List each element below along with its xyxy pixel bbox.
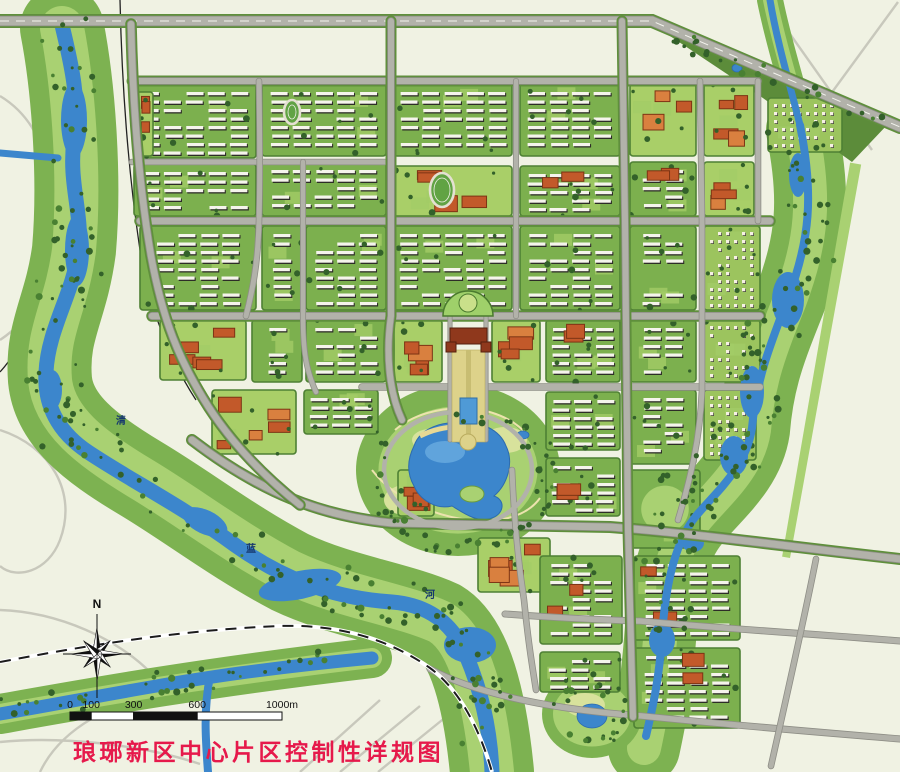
slab-building	[551, 143, 568, 146]
tree	[689, 175, 694, 180]
tree	[542, 507, 546, 511]
tree	[376, 512, 380, 516]
slab-building	[553, 417, 570, 420]
slab-building	[529, 234, 546, 237]
scale-bar-tick-label: 1000m	[266, 699, 298, 711]
civic-wing	[481, 342, 491, 352]
tree	[681, 500, 684, 503]
tree	[479, 697, 486, 704]
tree	[140, 493, 145, 498]
slab-building	[644, 328, 661, 331]
slab-building	[423, 234, 440, 237]
slab-building	[489, 243, 506, 246]
slab-building	[445, 243, 462, 246]
slab-building	[209, 101, 226, 104]
tree	[818, 239, 823, 244]
tree	[722, 673, 726, 677]
city-block	[630, 84, 696, 156]
tree	[688, 606, 694, 612]
tree	[653, 558, 660, 565]
tree	[704, 49, 710, 55]
tree	[658, 522, 665, 529]
tree	[644, 136, 650, 142]
tree	[62, 86, 66, 90]
villa-house	[782, 144, 785, 147]
tree	[500, 529, 503, 532]
villa-house	[718, 420, 721, 423]
tree	[262, 563, 266, 567]
slab-building	[644, 294, 661, 297]
slab-building	[467, 277, 484, 280]
tree	[118, 472, 124, 478]
slab-building	[488, 285, 505, 288]
slab-building	[528, 183, 545, 186]
slab-building	[209, 206, 226, 209]
tree	[62, 417, 68, 423]
tree	[446, 641, 452, 647]
tree	[825, 220, 830, 225]
slab-building	[550, 101, 567, 104]
tree	[572, 194, 579, 201]
villa-house	[782, 112, 785, 115]
tree	[739, 375, 745, 381]
villa-house	[734, 280, 737, 283]
villa-house	[742, 248, 745, 251]
tree	[78, 287, 85, 294]
slab-building	[597, 400, 614, 403]
tree	[741, 444, 747, 450]
tree	[653, 513, 656, 516]
slab-building	[338, 354, 355, 357]
courtyard	[719, 169, 737, 181]
slab-building	[528, 243, 545, 246]
slab-building	[596, 500, 613, 503]
villa-house	[726, 342, 729, 345]
tree	[86, 248, 93, 255]
tree	[728, 422, 734, 428]
slab-building	[338, 170, 355, 173]
villa-house	[718, 288, 721, 291]
slab-building	[208, 143, 225, 146]
slab-building	[467, 285, 484, 288]
orange-building	[641, 567, 657, 576]
villa-house	[806, 112, 809, 115]
tree	[154, 670, 159, 675]
slab-building	[467, 92, 484, 95]
slab-building	[332, 424, 349, 427]
tree	[290, 290, 295, 295]
tree	[346, 571, 349, 574]
slab-building	[466, 260, 483, 263]
tree	[186, 523, 190, 527]
slab-building	[401, 126, 418, 129]
slab-building	[156, 260, 173, 263]
river	[0, 153, 58, 158]
slab-building	[645, 598, 662, 601]
slab-building	[337, 109, 354, 112]
tree	[148, 182, 151, 185]
orange-building	[196, 360, 222, 370]
slab-building	[231, 206, 248, 209]
scale-bar-tick-label: 300	[125, 699, 143, 711]
slab-building	[550, 260, 567, 263]
villa-house	[726, 396, 729, 399]
villa-house	[734, 256, 737, 259]
villa-house	[734, 240, 737, 243]
slab-building	[231, 135, 248, 138]
slab-building	[528, 143, 545, 146]
slab-building	[689, 564, 706, 567]
slab-building	[354, 424, 371, 427]
tree	[35, 280, 38, 283]
slab-building	[466, 268, 483, 271]
tree	[796, 333, 801, 338]
tree	[315, 649, 321, 655]
tree	[573, 247, 579, 253]
tree	[506, 365, 512, 371]
slab-building	[550, 285, 567, 288]
slab-building	[596, 328, 613, 331]
slab-building	[573, 607, 590, 610]
tree	[533, 442, 536, 445]
slab-building	[208, 92, 225, 95]
city-block	[546, 458, 620, 516]
axis-median	[466, 350, 471, 442]
slab-building	[360, 196, 377, 199]
slab-building	[360, 294, 377, 297]
tree	[706, 271, 710, 275]
tree	[57, 46, 62, 51]
city-block	[394, 84, 512, 156]
slab-building	[338, 277, 355, 280]
tree	[79, 192, 83, 196]
slab-building	[643, 234, 660, 237]
slab-building	[400, 251, 417, 254]
slab-building	[360, 260, 377, 263]
tree	[586, 347, 590, 351]
tree	[51, 74, 55, 78]
slab-building	[596, 509, 613, 512]
tree	[788, 325, 795, 332]
courtyard	[720, 115, 738, 127]
tree	[518, 525, 524, 531]
tree	[173, 688, 180, 695]
tree	[796, 168, 799, 171]
tree	[741, 332, 746, 337]
slab-building	[666, 260, 683, 263]
slab-building	[359, 268, 376, 271]
slab-building	[201, 234, 218, 237]
tree	[51, 159, 56, 164]
tree	[492, 172, 495, 175]
villa-house	[710, 296, 713, 299]
tree	[588, 482, 595, 489]
slab-building	[667, 707, 684, 710]
slab-building	[572, 183, 589, 186]
slab-building	[178, 277, 195, 280]
tree	[576, 189, 581, 194]
orange-building	[543, 178, 559, 188]
slab-building	[400, 101, 417, 104]
tree	[240, 554, 243, 557]
slab-building	[316, 285, 333, 288]
tree	[555, 360, 560, 365]
slab-building	[595, 183, 612, 186]
slab-building	[164, 109, 181, 112]
villa-house	[782, 104, 785, 107]
tree	[287, 427, 291, 431]
slab-building	[551, 126, 568, 129]
tree	[676, 498, 680, 502]
slab-building	[529, 268, 546, 271]
tree	[672, 40, 676, 44]
tree	[682, 616, 687, 621]
tree	[503, 359, 507, 363]
tree	[631, 90, 634, 93]
tree	[586, 342, 591, 347]
tree	[612, 739, 616, 743]
slab-building	[316, 362, 333, 365]
villa-house	[718, 342, 721, 345]
villa-house	[726, 428, 729, 431]
tree	[804, 290, 810, 296]
tree	[424, 507, 429, 512]
slab-building	[164, 126, 181, 129]
tree	[392, 520, 396, 524]
tree	[151, 203, 155, 207]
slab-building	[271, 92, 288, 95]
tree	[591, 570, 596, 575]
slab-building	[529, 191, 546, 194]
tree	[458, 601, 463, 606]
tree	[71, 239, 76, 244]
tree	[739, 70, 746, 77]
tree	[520, 444, 525, 449]
tree	[215, 528, 220, 533]
orange-building	[562, 172, 584, 181]
slab-building	[359, 243, 376, 246]
tree	[352, 150, 358, 156]
river-widening	[61, 82, 87, 158]
tree	[11, 710, 18, 717]
tree	[284, 355, 288, 359]
villa-house	[774, 128, 777, 131]
tree	[432, 624, 439, 631]
tree	[40, 39, 44, 43]
orange-building	[249, 431, 262, 440]
villa-house	[726, 280, 729, 283]
tree	[483, 136, 488, 141]
tree	[116, 433, 119, 436]
city-block	[630, 390, 696, 464]
tree	[277, 667, 281, 671]
slab-building	[595, 302, 612, 305]
slab-building	[187, 152, 204, 155]
tree	[353, 575, 360, 582]
tree	[786, 150, 791, 155]
tree	[550, 461, 555, 466]
orange-building	[509, 337, 532, 350]
tree	[605, 689, 610, 694]
tree	[530, 114, 535, 119]
slab-building	[528, 118, 545, 121]
villa-house	[742, 240, 745, 243]
slab-building	[200, 294, 217, 297]
slab-building	[711, 590, 728, 593]
tree	[761, 364, 767, 370]
slab-building	[712, 607, 729, 610]
slab-building	[529, 174, 546, 177]
villa-house	[742, 256, 745, 259]
tree	[76, 445, 81, 450]
villa-house	[734, 374, 737, 377]
slab-building	[360, 126, 377, 129]
tree	[456, 703, 462, 709]
slab-building	[231, 92, 248, 95]
slab-building	[594, 118, 611, 121]
slab-building	[445, 118, 462, 121]
tree	[396, 519, 400, 523]
slab-building	[666, 294, 683, 297]
tree	[752, 253, 755, 256]
slab-building	[596, 371, 613, 374]
river-widening	[649, 623, 675, 657]
tree	[89, 234, 95, 240]
tree	[510, 556, 514, 560]
tree	[525, 444, 531, 450]
tree	[199, 666, 205, 672]
slab-building	[467, 101, 484, 104]
tree	[397, 106, 402, 111]
orange-building	[501, 349, 519, 359]
tree	[271, 331, 276, 336]
slab-building	[337, 101, 354, 104]
tree	[276, 373, 282, 379]
slab-building	[423, 243, 440, 246]
slab-building	[222, 243, 239, 246]
slab-building	[401, 302, 418, 305]
villa-house	[742, 436, 745, 439]
tree	[89, 74, 95, 80]
tree	[787, 204, 790, 207]
tree	[82, 423, 85, 426]
slab-building	[230, 109, 247, 112]
slab-building	[643, 345, 660, 348]
slab-building	[528, 101, 545, 104]
tree	[498, 678, 503, 683]
tree	[813, 121, 820, 128]
tree	[806, 276, 812, 282]
slab-building	[338, 294, 355, 297]
slab-building	[571, 669, 588, 672]
slab-building	[711, 598, 728, 601]
villa-house	[718, 232, 721, 235]
tree	[408, 195, 413, 200]
tree	[508, 419, 513, 424]
city-block	[262, 161, 386, 216]
orange-building	[719, 100, 733, 108]
slab-building	[666, 187, 683, 190]
tree	[788, 169, 791, 172]
tree	[330, 608, 335, 613]
tree	[729, 228, 733, 232]
tree	[720, 454, 723, 457]
slab-building	[359, 118, 376, 121]
plaza-center	[459, 294, 477, 312]
tree	[647, 304, 654, 311]
villa-house	[726, 374, 729, 377]
tree	[434, 613, 440, 619]
slab-building	[553, 443, 570, 446]
slab-building	[572, 92, 589, 95]
tree	[692, 531, 696, 535]
tree	[250, 408, 254, 412]
slab-building	[594, 135, 611, 138]
tree	[593, 394, 597, 398]
tree	[79, 382, 84, 387]
slab-building	[574, 434, 591, 437]
orange-building	[268, 409, 290, 420]
slab-building	[552, 345, 569, 348]
tree	[568, 266, 575, 273]
tree	[741, 163, 745, 167]
slab-building	[315, 196, 332, 199]
villa-house	[726, 240, 729, 243]
tree	[491, 676, 495, 680]
tree	[690, 546, 697, 553]
villa-house	[710, 374, 713, 377]
scale-bar-segment	[91, 712, 133, 720]
tree	[465, 629, 468, 632]
tree	[51, 297, 54, 300]
slab-building	[572, 260, 589, 263]
slab-building	[597, 434, 614, 437]
tree	[380, 199, 385, 204]
slab-building	[164, 172, 181, 175]
slab-building	[665, 424, 682, 427]
tree	[531, 323, 536, 328]
orange-building	[141, 122, 149, 132]
slab-building	[316, 92, 333, 95]
slab-building	[178, 234, 195, 237]
slab-building	[489, 277, 506, 280]
villa-house	[710, 358, 713, 361]
tree	[79, 409, 82, 412]
tree	[368, 113, 373, 118]
tree	[743, 135, 748, 140]
tree	[385, 617, 392, 624]
tree	[84, 693, 87, 696]
tree	[461, 419, 466, 424]
tree	[118, 440, 123, 445]
slab-building	[528, 277, 545, 280]
slab-building	[360, 143, 377, 146]
slab-building	[444, 101, 461, 104]
slab-building	[667, 682, 684, 685]
tree	[367, 416, 372, 421]
tree	[693, 41, 697, 45]
tree	[616, 687, 620, 691]
slab-building	[294, 143, 311, 146]
villa-house	[710, 444, 713, 447]
slab-building	[573, 624, 590, 627]
river-label: 蓝	[246, 542, 256, 555]
slab-building	[269, 354, 286, 357]
slab-building	[209, 181, 226, 184]
slab-building	[293, 126, 310, 129]
tree	[758, 465, 761, 468]
slab-building	[467, 135, 484, 138]
